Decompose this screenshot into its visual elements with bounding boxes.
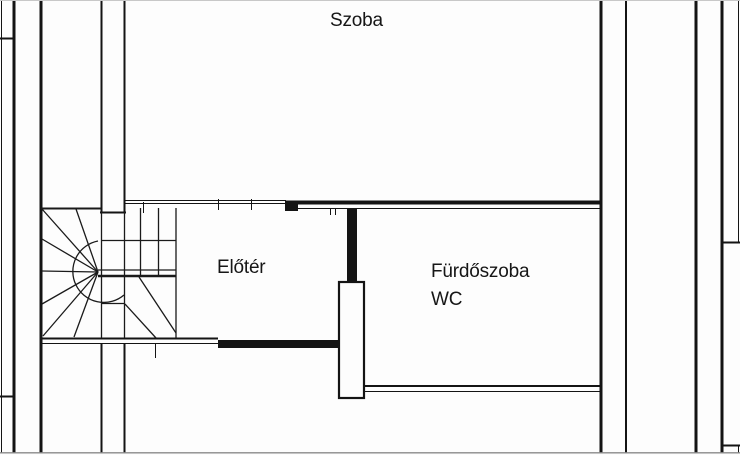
room-label-eloter: Előtér: [217, 258, 265, 279]
room-label-szoba: Szoba: [330, 11, 383, 32]
staircase: [41, 208, 176, 338]
door-jamb: [285, 201, 298, 211]
solid-wall-segment: [218, 340, 341, 348]
room-label-furdoszoba: Fürdőszoba: [431, 262, 529, 283]
shaft-rect: [339, 282, 364, 398]
room-label-wc: WC: [431, 290, 462, 311]
floorplan-drawing: [0, 0, 740, 455]
door-leaf: [347, 208, 357, 282]
shaft: [339, 282, 364, 398]
floorplan-canvas: Szoba Előtér Fürdőszoba WC: [0, 0, 740, 455]
door-leaf-bar: [347, 208, 357, 282]
